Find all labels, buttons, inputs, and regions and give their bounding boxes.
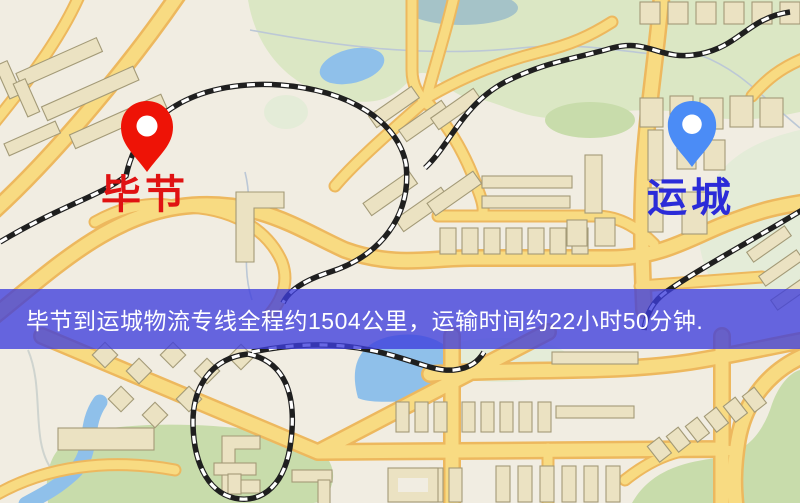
map-canvas[interactable]: [0, 0, 800, 503]
origin-label: 毕节: [101, 175, 189, 215]
route-banner-text: 毕节到运城物流专线全程约1504公里，运输时间约22小时50分钟.: [26, 302, 703, 336]
map-drawing: [0, 0, 800, 503]
destination-label: 运城: [647, 178, 735, 218]
route-banner: 毕节到运城物流专线全程约1504公里，运输时间约22小时50分钟.: [0, 289, 800, 349]
